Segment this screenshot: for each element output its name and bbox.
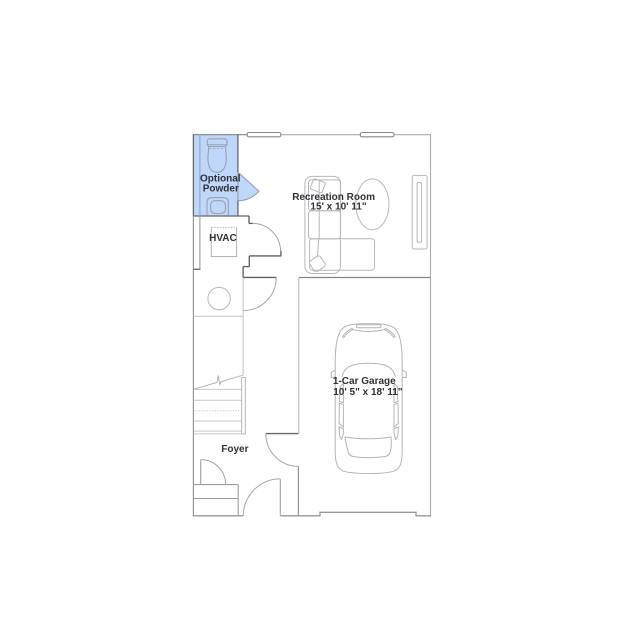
- svg-text:15' x 10' 11": 15' x 10' 11": [310, 201, 366, 212]
- svg-text:Foyer: Foyer: [221, 444, 248, 455]
- svg-text:Optional: Optional: [200, 173, 241, 184]
- svg-text:Powder: Powder: [203, 184, 239, 195]
- svg-text:10' 5" x 18' 11": 10' 5" x 18' 11": [333, 387, 403, 398]
- svg-text:1-Car Garage: 1-Car Garage: [333, 376, 396, 387]
- svg-text:HVAC: HVAC: [209, 233, 237, 244]
